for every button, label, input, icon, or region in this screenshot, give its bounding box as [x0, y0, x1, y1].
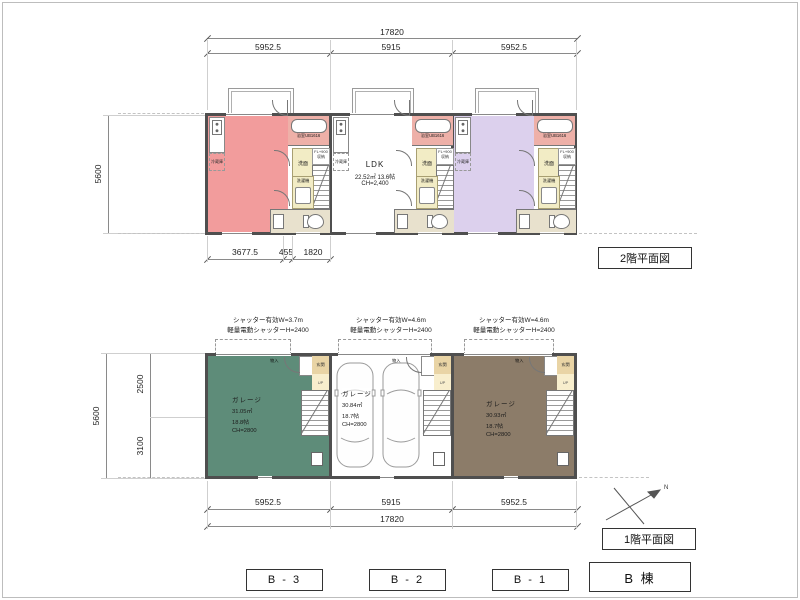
second-floor-plan: 冷蔵庫 浴室UB1616 洗面 FL+900収納 DN 洗濯機	[205, 113, 577, 235]
garage-area: 30.84㎡	[342, 400, 372, 409]
dim-2f-left: 5600	[93, 165, 103, 184]
floor-plan-sheet: 17820 5952.5 5915 5952.5 5600 冷蔵庫 浴室UB16…	[0, 0, 800, 600]
entrance: 玄関	[557, 356, 574, 374]
ldk-ceiling: CH=2,400	[344, 181, 406, 187]
extension-line	[150, 417, 205, 418]
laundry-space: 洗濯機	[416, 176, 438, 209]
unit-tag-b2-label: B - 2	[391, 574, 424, 586]
unit-b2-1f: 物入 玄関 UP ガレージ 30.84㎡ 18.7帖 CH=2800	[332, 356, 451, 476]
building-tag: B 棟	[589, 562, 691, 592]
bathtub-icon	[291, 119, 327, 133]
storage-shelf: FL+900収納	[436, 148, 454, 165]
window	[350, 113, 394, 116]
door-leaf	[409, 100, 410, 115]
toilet-icon	[307, 214, 324, 229]
extension-line	[207, 236, 208, 262]
extension-line	[330, 236, 331, 262]
first-floor-plan: 物入 玄関 UP ガレージ 31.05㎡ 18.8帖 CH=2800	[205, 353, 577, 479]
bathroom-label: 浴室UB1616	[288, 134, 329, 139]
dim-2f-seg1: 5952.5	[255, 42, 281, 52]
unit-tag-b3-label: B - 3	[268, 574, 301, 586]
washroom: 洗面	[416, 148, 438, 178]
extension-line	[283, 236, 284, 262]
garage-name: ガレージ	[342, 388, 372, 398]
washroom: 洗面	[538, 148, 560, 178]
laundry-space: 洗濯機	[538, 176, 560, 209]
unit-tag-b3: B - 3	[246, 569, 323, 591]
dim-2f-seg2: 5915	[382, 42, 401, 52]
dim-1f-3100: 3100	[135, 437, 145, 456]
entry-landing: UP	[557, 374, 574, 390]
toilet-icon	[553, 214, 570, 229]
dashed-line	[579, 477, 649, 478]
stove-icon	[458, 120, 468, 135]
north-arrow-icon	[598, 482, 683, 526]
stairs-up	[546, 390, 574, 436]
extension-line	[452, 481, 453, 529]
stairs-down	[436, 165, 454, 209]
entry-door-arc	[394, 100, 410, 116]
hand-basin-icon	[397, 214, 408, 229]
second-floor-title: 2階平面図	[620, 250, 670, 266]
bathroom: 浴室UB1616	[288, 116, 329, 146]
extension-line	[103, 115, 205, 116]
bathtub-icon	[415, 119, 451, 133]
window	[540, 232, 564, 235]
ldk-area: 22.52㎡ 13.6帖	[344, 172, 406, 181]
dim-line-2f-left	[108, 115, 109, 233]
garage-name: ガレージ	[232, 394, 262, 404]
dim-line-2f-bottom	[207, 259, 330, 260]
stove-icon	[212, 120, 222, 135]
shutter-note-b3: シャッター有効W=3.7m 軽量電動シャッターH=2400	[227, 316, 308, 336]
shutter-opening	[464, 353, 552, 356]
dim-2f-seg3: 5952.5	[501, 42, 527, 52]
closet-label: 物入	[392, 359, 400, 364]
dim-1f-seg2: 5915	[382, 497, 401, 507]
door-opening	[380, 476, 394, 479]
closet-label: 物入	[270, 359, 278, 364]
extension-line	[101, 478, 205, 479]
unit-tag-b1-label: B - 1	[514, 574, 547, 586]
unit-tag-b1: B - 1	[492, 569, 569, 591]
garage-b2-label: ガレージ 30.84㎡ 18.7帖 CH=2800	[342, 388, 372, 428]
laundry-label: 洗濯機	[539, 179, 559, 184]
stove-icon	[336, 120, 346, 135]
unit-b3-1f: 物入 玄関 UP ガレージ 31.05㎡ 18.8帖 CH=2800	[208, 356, 329, 476]
dim-1f-left: 5600	[91, 407, 101, 426]
laundry-label: 洗濯機	[417, 179, 437, 184]
fridge-box: 冷蔵庫	[455, 153, 471, 171]
garage-b1-label: ガレージ 30.93㎡ 18.7帖 CH=2800	[486, 398, 516, 438]
dim-2f-total: 17820	[380, 27, 404, 37]
first-floor-title: 1階平面図	[624, 531, 674, 547]
unit-b3-2f: 冷蔵庫 浴室UB1616 洗面 FL+900収納 DN 洗濯機	[208, 116, 329, 232]
dim-line-1f-total	[207, 526, 577, 527]
bathroom-label: 浴室UB1616	[412, 134, 453, 139]
door-leaf	[287, 100, 288, 115]
garage-area: 30.93㎡	[486, 410, 516, 419]
garage-area: 31.05㎡	[232, 406, 262, 415]
bathroom: 浴室UB1616	[412, 116, 453, 146]
unit-b1-1f: 物入 玄関 UP ガレージ 30.93㎡ 18.7帖 CH=2800	[454, 356, 574, 476]
first-floor-title-box: 1階平面図	[602, 528, 696, 550]
kitchen-counter	[455, 117, 471, 153]
dim-1f-total: 17820	[380, 514, 404, 524]
shutter-note-b2-l1: シャッター有効W=4.6m	[356, 317, 426, 324]
dim-1f-2500: 2500	[135, 375, 145, 394]
extension-line	[330, 40, 331, 110]
extension-line	[330, 481, 331, 529]
dim-line-1f-left-inner	[150, 353, 151, 479]
fridge-box: 冷蔵庫	[209, 153, 225, 171]
washroom: 洗面	[292, 148, 314, 178]
dim-line-2f-total	[207, 38, 577, 39]
dim-2f-b3: 1820	[304, 247, 323, 257]
shutter-note-b1: シャッター有効W=4.6m 軽量電動シャッターH=2400	[473, 316, 554, 336]
utility-box	[433, 452, 445, 466]
extension-line	[452, 40, 453, 110]
window	[346, 232, 376, 235]
utility-box	[311, 452, 323, 466]
garage-ceiling: CH=2800	[486, 432, 516, 438]
north-label: N	[664, 485, 668, 492]
dim-2f-b1: 3677.5	[232, 247, 258, 257]
garage-ceiling: CH=2800	[232, 428, 262, 434]
hand-basin-icon	[519, 214, 530, 229]
window	[468, 232, 498, 235]
dim-line-2f-segments	[207, 53, 577, 54]
washing-machine-icon	[295, 187, 311, 204]
laundry-space: 洗濯機	[292, 176, 314, 209]
extension-line	[207, 481, 208, 529]
dashed-line	[579, 233, 697, 234]
storage-label-2: 収納	[441, 154, 449, 159]
entry-door-arc	[272, 100, 288, 116]
closet-label: 物入	[515, 359, 523, 364]
window	[222, 232, 252, 235]
door-opening	[504, 476, 518, 479]
stairs-up	[301, 390, 329, 436]
shutter-note-b2-l2: 軽量電動シャッターH=2400	[350, 327, 431, 334]
garage-tatami: 18.8帖	[232, 417, 262, 426]
shutter-note-b2: シャッター有効W=4.6m 軽量電動シャッターH=2400	[350, 316, 431, 336]
entrance: 玄関	[434, 356, 451, 374]
toilet-room	[516, 209, 576, 233]
entrance: 玄関	[312, 356, 329, 374]
unit-b1-2f: 冷蔵庫 浴室UB1616 洗面 FL+900収納 DN 洗濯機	[454, 116, 574, 232]
unit-b2-2f: 冷蔵庫 LDK 22.52㎡ 13.6帖 CH=2,400 浴室UB1616 洗…	[332, 116, 451, 232]
laundry-label: 洗濯機	[293, 179, 313, 184]
door-leaf	[532, 100, 533, 115]
toilet-room	[270, 209, 330, 233]
extension-line	[207, 40, 208, 110]
unit-tag-b2: B - 2	[369, 569, 446, 591]
second-floor-title-box: 2階平面図	[598, 247, 692, 269]
garage-ceiling: CH=2800	[342, 422, 372, 428]
toilet-icon	[431, 214, 448, 229]
kitchen-counter	[333, 117, 349, 153]
extension-line	[576, 481, 577, 529]
dim-1f-seg1: 5952.5	[255, 497, 281, 507]
shutter-note-b3-l1: シャッター有効W=3.7m	[233, 317, 303, 324]
dim-line-1f-left	[106, 353, 107, 479]
entry-door-arc	[517, 100, 533, 116]
storage-shelf: FL+900収納	[558, 148, 576, 165]
storage-label-2: 収納	[317, 154, 325, 159]
garage-b3-label: ガレージ 31.05㎡ 18.8帖 CH=2800	[232, 394, 262, 434]
building-tag-label: B 棟	[624, 568, 655, 587]
washing-machine-icon	[419, 187, 435, 204]
hand-basin-icon	[273, 214, 284, 229]
storage-shelf: FL+900収納	[312, 148, 330, 165]
bathroom: 浴室UB1616	[534, 116, 575, 146]
window	[418, 232, 442, 235]
window	[472, 113, 516, 116]
stairs-up	[423, 390, 451, 436]
shutter-opening	[338, 353, 430, 356]
shutter-note-b1-l2: 軽量電動シャッターH=2400	[473, 327, 554, 334]
kitchen-counter	[209, 117, 225, 153]
stairs-down	[558, 165, 576, 209]
dim-line-1f-segments	[207, 509, 577, 510]
entry-landing: UP	[312, 374, 329, 390]
garage-tatami: 18.7帖	[342, 411, 372, 420]
shutter-opening	[216, 353, 291, 356]
bathroom-label: 浴室UB1616	[534, 134, 575, 139]
storage-label-2: 収納	[563, 154, 571, 159]
garage-tatami: 18.7帖	[486, 421, 516, 430]
dashed-line	[118, 113, 204, 114]
extension-line	[576, 40, 577, 110]
shutter-note-b3-l2: 軽量電動シャッターH=2400	[227, 327, 308, 334]
toilet-room	[394, 209, 454, 233]
extension-line	[292, 236, 293, 262]
garage-name: ガレージ	[486, 398, 516, 408]
bathtub-icon	[537, 119, 573, 133]
window	[296, 232, 320, 235]
extension-line	[101, 353, 205, 354]
door-opening	[258, 476, 272, 479]
window	[226, 113, 272, 116]
dim-1f-seg3: 5952.5	[501, 497, 527, 507]
shutter-note-b1-l1: シャッター有効W=4.6m	[479, 317, 549, 324]
entry-landing: UP	[434, 374, 451, 390]
utility-box	[557, 452, 569, 466]
dashed-line	[118, 233, 204, 234]
washing-machine-icon	[541, 187, 557, 204]
